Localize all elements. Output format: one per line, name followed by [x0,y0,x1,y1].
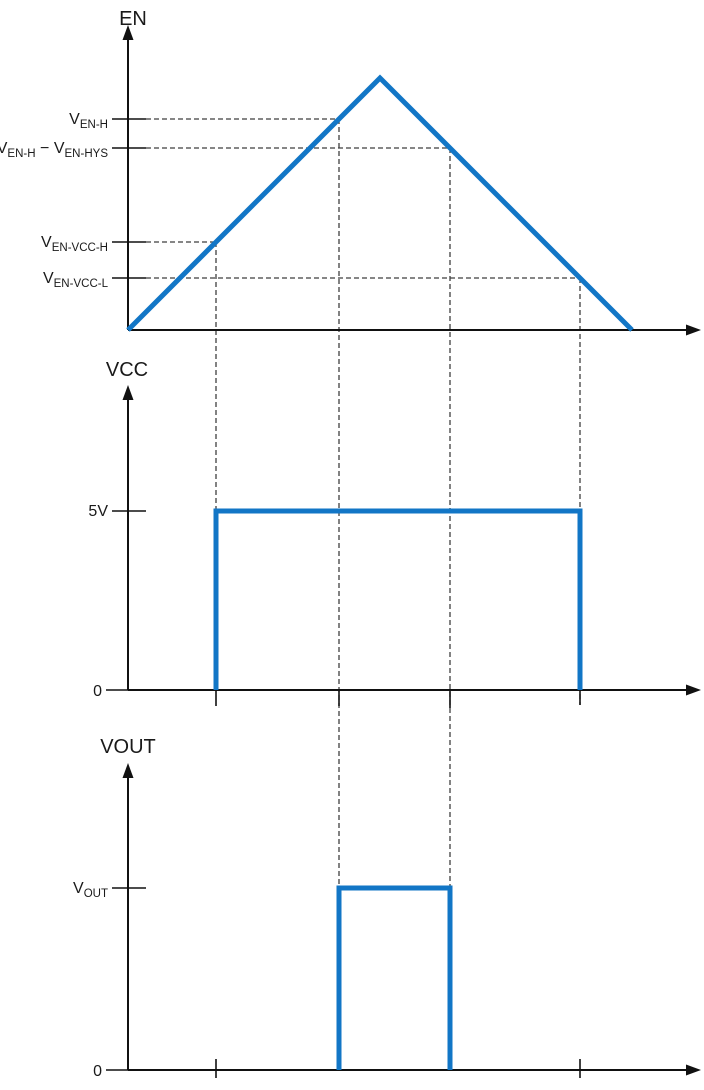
en-title: EN [119,8,147,30]
vout-y-axis-arrow-icon [123,763,134,778]
vcc-zero-label: 0 [93,683,102,700]
en-level-label-2: VEN-VCC-H [41,234,108,254]
timing-diagram-svg: ENVEN-HVEN-H − VEN-HYSVEN-VCC-HVEN-VCC-L… [0,0,704,1090]
vcc-level-label-0: 5V [88,503,108,520]
en-waveform [128,78,632,330]
en-level-label-3: VEN-VCC-L [43,270,109,290]
vout-title: VOUT [100,736,156,758]
vout-level-label-0: VOUT [73,880,108,900]
vcc-y-axis-arrow-icon [123,385,134,400]
vcc-x-axis-arrow-icon [686,685,701,696]
vout-x-axis-arrow-icon [686,1065,701,1076]
vcc-waveform [216,511,580,690]
en-x-axis-arrow-icon [686,325,701,336]
timing-diagram: ENVEN-HVEN-H − VEN-HYSVEN-VCC-HVEN-VCC-L… [0,0,704,1090]
en-level-label-0: VEN-H [69,111,108,131]
vout-waveform [339,888,450,1070]
vcc-title: VCC [106,359,148,381]
en-level-label-1: VEN-H − VEN-HYS [0,140,108,160]
vout-zero-label: 0 [93,1063,102,1080]
